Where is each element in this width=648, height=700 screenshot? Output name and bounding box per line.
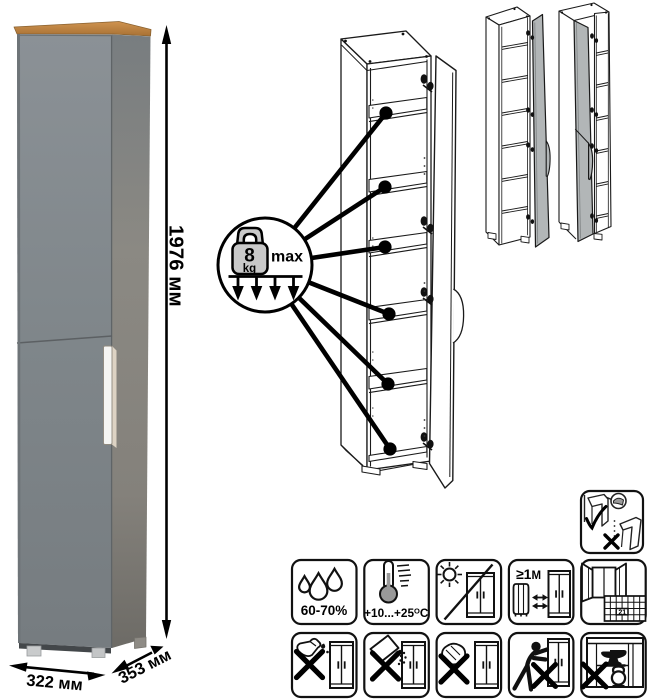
svg-text:1976 мм: 1976 мм — [165, 225, 188, 307]
svg-text:60-70%: 60-70% — [301, 603, 348, 618]
svg-text:max: max — [271, 249, 303, 266]
svg-text:21: 21 — [618, 610, 626, 617]
svg-text:kg: kg — [243, 263, 256, 275]
svg-text:+10...+25OC: +10...+25OC — [364, 606, 429, 620]
